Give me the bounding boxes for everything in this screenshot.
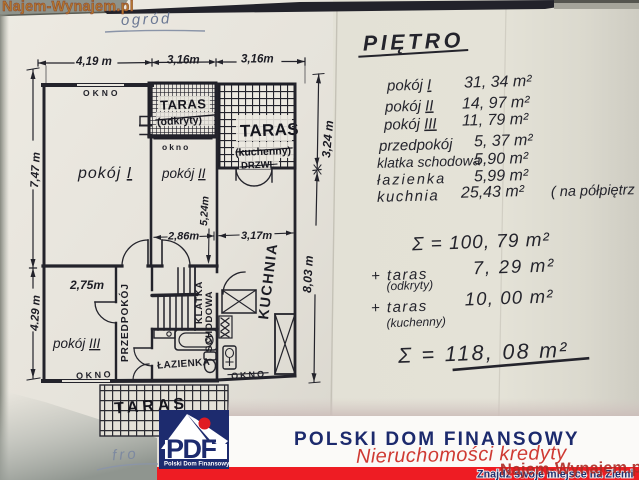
svg-text:3,16m: 3,16m — [167, 55, 200, 67]
svg-text:pokój II: pokój II — [161, 166, 206, 181]
svg-text:3,16m: 3,16m — [241, 54, 274, 66]
svg-text:TARAS: TARAS — [240, 120, 299, 141]
svg-text:3,17m: 3,17m — [241, 230, 272, 242]
svg-text:( na półpiętrz: ( na półpiętrz — [551, 182, 636, 200]
svg-text:TARAS: TARAS — [160, 96, 207, 113]
svg-text:PRZEDPOKÓJ: PRZEDPOKÓJ — [118, 283, 131, 362]
svg-text:pokój III: pokój III — [52, 336, 101, 351]
svg-text:pokój I: pokój I — [386, 76, 432, 94]
svg-text:pokój I: pokój I — [77, 165, 132, 182]
svg-text:pokój III: pokój III — [383, 115, 437, 133]
svg-text:5,90 m²: 5,90 m² — [474, 150, 529, 168]
svg-text:5,24m: 5,24m — [198, 196, 212, 226]
svg-text:14, 97 m²: 14, 97 m² — [462, 94, 531, 113]
svg-text:10, 00 m²: 10, 00 m² — [464, 285, 554, 309]
svg-text:okno: okno — [162, 142, 190, 152]
svg-text:ogród: ogród — [121, 10, 172, 29]
svg-text:SCHODOWA: SCHODOWA — [204, 291, 215, 352]
svg-text:klatka schodowa: klatka schodowa — [377, 152, 481, 171]
svg-text:Najem-Wynajem.pl: Najem-Wynajem.pl — [500, 458, 639, 479]
svg-text:31, 34 m²: 31, 34 m² — [464, 73, 533, 92]
svg-text:(kuchenny): (kuchenny) — [386, 314, 446, 330]
svg-text:7, 29 m²: 7, 29 m² — [472, 254, 555, 278]
svg-text:2,75m: 2,75m — [69, 278, 104, 292]
svg-text:OKNO: OKNO — [76, 369, 113, 381]
svg-text:11, 79 m²: 11, 79 m² — [462, 111, 529, 130]
svg-text:Najem-Wynajem.pl: Najem-Wynajem.pl — [2, 0, 134, 15]
svg-text:kuchnia: kuchnia — [377, 187, 440, 206]
svg-text:łazienka: łazienka — [377, 171, 447, 189]
svg-text:OKNO: OKNO — [83, 88, 121, 98]
svg-text:8,03 m: 8,03 m — [300, 255, 316, 293]
svg-text:(odkryty): (odkryty) — [386, 278, 433, 294]
svg-text:25,43 m²: 25,43 m² — [460, 183, 525, 202]
svg-text:+ taras: + taras — [371, 298, 428, 317]
svg-text:fro: fro — [112, 445, 140, 464]
svg-text:4.29 m: 4.29 m — [29, 295, 43, 332]
svg-text:7,47 m: 7,47 m — [29, 152, 43, 188]
svg-text:2,86m: 2,86m — [167, 231, 199, 243]
svg-text:pokój II: pokój II — [384, 97, 434, 115]
svg-text:4,19 m: 4,19 m — [75, 56, 112, 68]
svg-text:przedpokój: przedpokój — [378, 136, 453, 155]
svg-text:Polski Dom Finansowy: Polski Dom Finansowy — [164, 462, 230, 468]
svg-text:PDF: PDF — [166, 434, 217, 464]
svg-text:5, 37 m²: 5, 37 m² — [474, 132, 534, 151]
